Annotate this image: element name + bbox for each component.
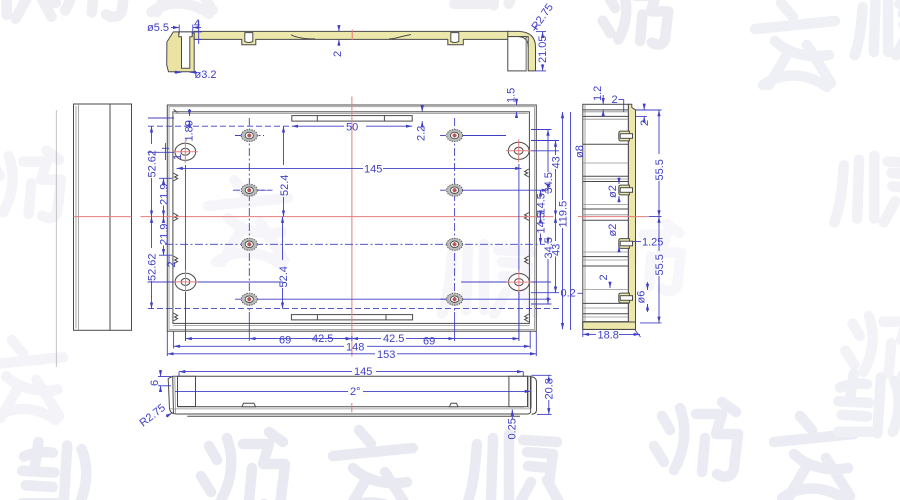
svg-text:34.5: 34.5: [543, 172, 555, 193]
svg-text:2: 2: [598, 274, 610, 280]
svg-text:52.4: 52.4: [278, 266, 290, 287]
svg-text:145: 145: [354, 366, 372, 378]
svg-text:55.5: 55.5: [654, 254, 666, 275]
svg-text:1.89: 1.89: [184, 120, 196, 141]
svg-text:148: 148: [346, 341, 364, 353]
svg-text:21.9: 21.9: [159, 184, 171, 205]
svg-text:69: 69: [423, 336, 435, 348]
svg-text:52.62: 52.62: [147, 150, 159, 178]
svg-text:42.5: 42.5: [383, 333, 404, 345]
svg-text:ø5.5: ø5.5: [147, 22, 169, 34]
svg-text:0.25: 0.25: [507, 418, 519, 439]
svg-text:55.5: 55.5: [654, 159, 666, 180]
svg-text:1.5: 1.5: [506, 88, 518, 103]
svg-text:21.9: 21.9: [159, 224, 171, 245]
svg-text:ø2: ø2: [607, 185, 619, 198]
svg-text:1.25: 1.25: [642, 237, 663, 249]
svg-text:43: 43: [551, 244, 563, 256]
svg-text:2: 2: [332, 51, 344, 57]
svg-text:2.2: 2.2: [416, 126, 428, 141]
svg-text:ø2: ø2: [607, 224, 619, 237]
svg-text:4: 4: [194, 18, 200, 30]
svg-text:43: 43: [551, 156, 563, 168]
svg-text:2: 2: [612, 94, 618, 106]
svg-text:2: 2: [639, 120, 651, 126]
svg-text:1.2: 1.2: [592, 86, 604, 101]
svg-text:21.05: 21.05: [537, 35, 549, 63]
svg-text:14.5: 14.5: [536, 193, 548, 214]
svg-text:52.4: 52.4: [279, 175, 291, 196]
svg-text:20.8: 20.8: [544, 378, 556, 399]
svg-text:14.5: 14.5: [536, 212, 548, 233]
svg-text:6: 6: [149, 380, 161, 386]
svg-text:2°: 2°: [350, 386, 361, 398]
svg-text:0.2: 0.2: [561, 288, 576, 300]
svg-text:52.62: 52.62: [147, 253, 159, 281]
svg-text:153: 153: [377, 349, 395, 361]
svg-text:ø6: ø6: [636, 291, 648, 304]
svg-text:119.5: 119.5: [558, 201, 570, 228]
svg-text:42.5: 42.5: [312, 333, 333, 345]
svg-text:145: 145: [364, 164, 382, 176]
svg-text:69: 69: [279, 335, 291, 347]
svg-text:50: 50: [346, 122, 358, 134]
svg-text:2: 2: [166, 261, 178, 267]
svg-text:ø8: ø8: [574, 145, 586, 158]
svg-text:1: 1: [172, 154, 184, 160]
svg-text:18.8: 18.8: [598, 329, 619, 341]
svg-text:R2.75: R2.75: [529, 2, 556, 33]
svg-text:ø3.2: ø3.2: [195, 69, 217, 81]
svg-text:R2.75: R2.75: [137, 402, 168, 430]
